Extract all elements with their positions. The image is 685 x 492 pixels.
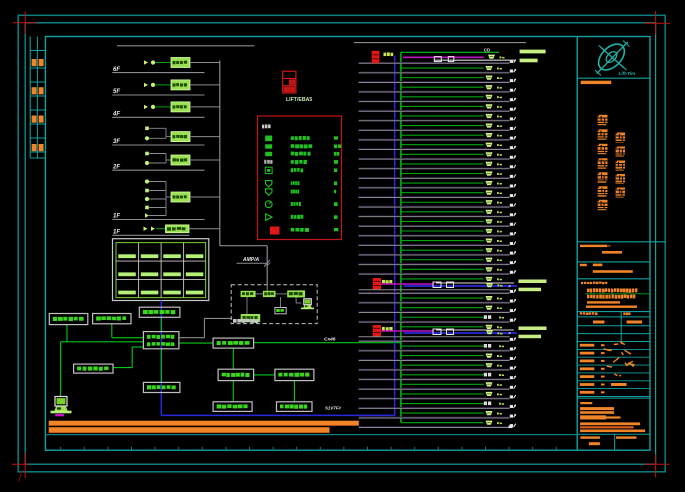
svg-text:AMP/A: AMP/A [242, 257, 260, 263]
svg-text:3F: 3F [113, 139, 120, 145]
svg-text:6F: 6F [113, 67, 120, 73]
svg-text:1F: 1F [113, 214, 120, 220]
svg-text:2F: 2F [112, 164, 120, 170]
svg-text:Cx46: Cx46 [324, 337, 336, 343]
svg-text:LIFT/EBA5: LIFT/EBA5 [286, 97, 312, 103]
svg-text:1F: 1F [113, 230, 120, 236]
svg-text:5F: 5F [113, 89, 120, 95]
svg-text:4F: 4F [112, 112, 120, 118]
svg-text:CD: CD [484, 48, 490, 53]
svg-text:Lift-Tim: Lift-Tim [619, 71, 636, 76]
svg-text:S1V7F#: S1V7F# [325, 406, 341, 411]
